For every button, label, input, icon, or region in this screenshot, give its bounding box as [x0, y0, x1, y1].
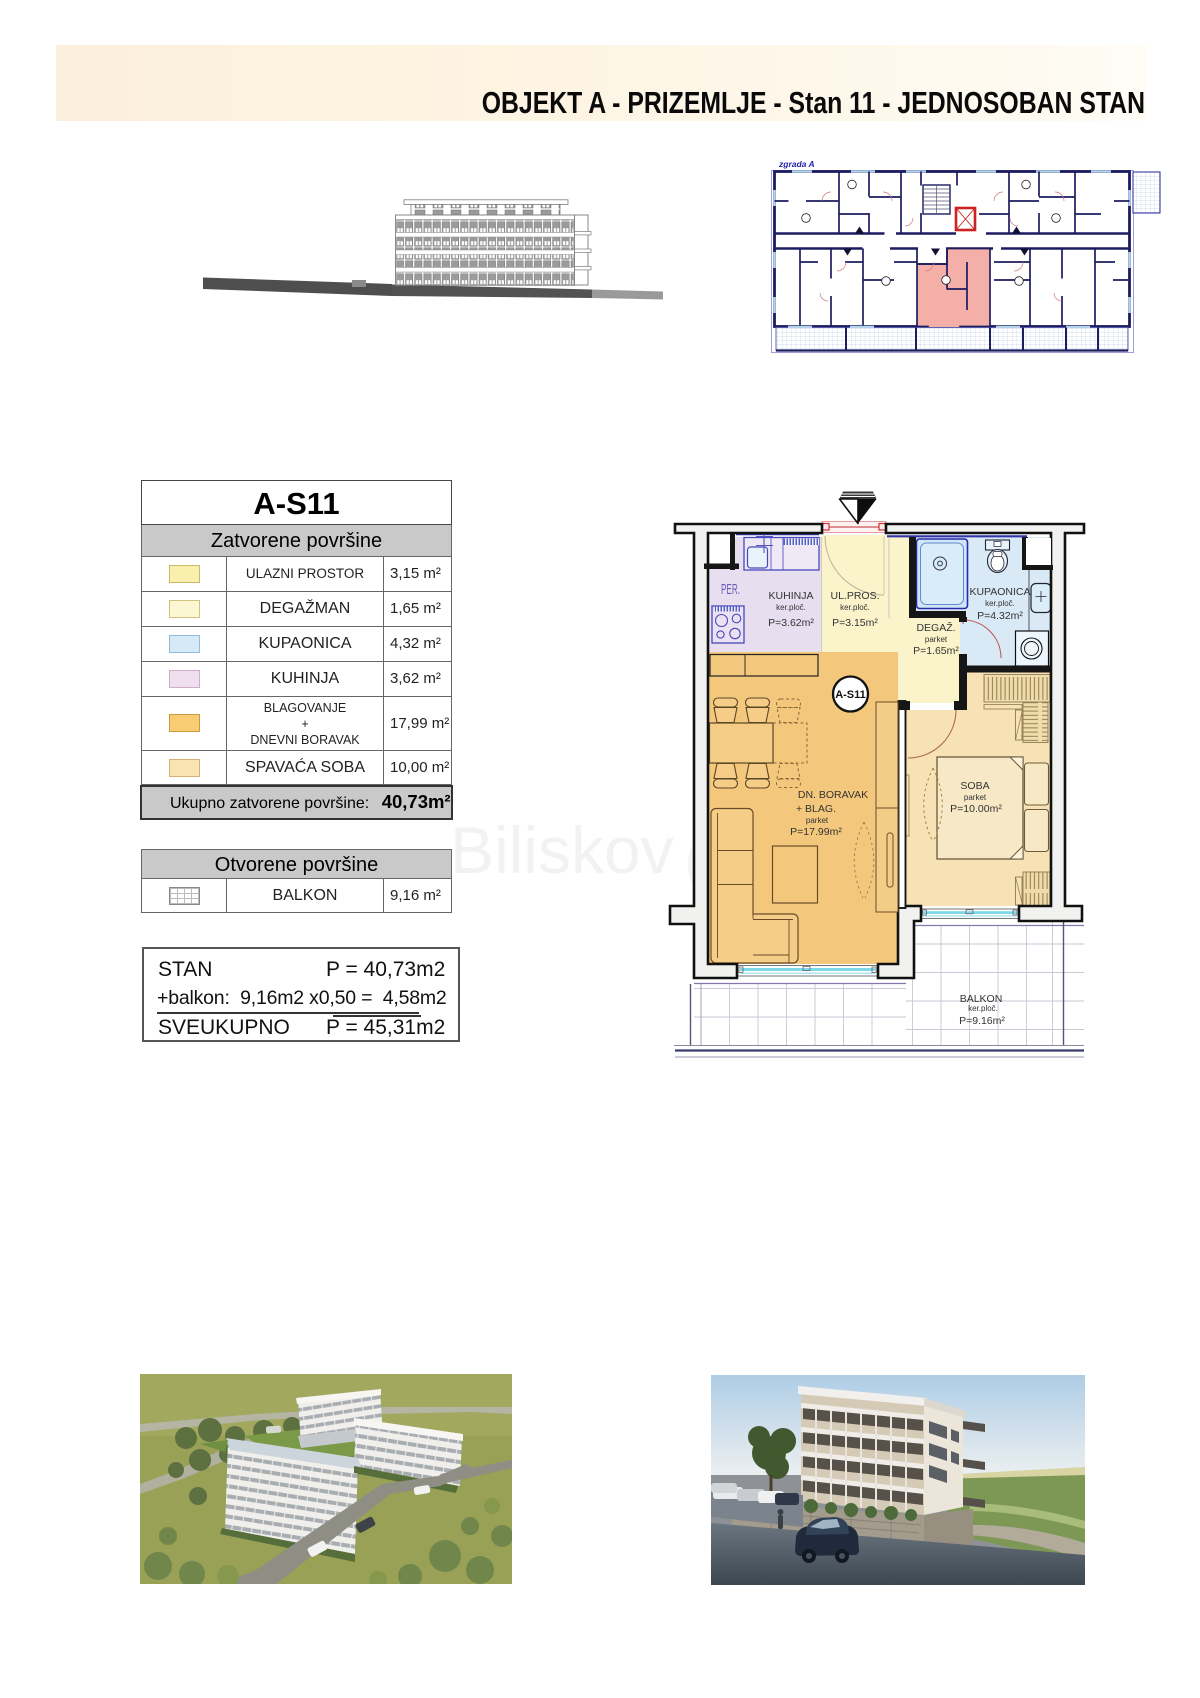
svg-text:SOBA: SOBA	[960, 780, 989, 792]
svg-text:KUPAONICA: KUPAONICA	[969, 586, 1030, 598]
svg-text:A-S11: A-S11	[835, 689, 866, 701]
svg-text:KUHINJA: KUHINJA	[769, 590, 814, 602]
svg-text:P=1.65m²: P=1.65m²	[913, 645, 959, 657]
svg-text:parket: parket	[964, 793, 987, 802]
svg-text:P=3.15m²: P=3.15m²	[832, 617, 878, 629]
svg-text:P=9.16m²: P=9.16m²	[959, 1015, 1005, 1027]
svg-text:ker.ploč.: ker.ploč.	[968, 1004, 998, 1013]
svg-text:P=4.32m²: P=4.32m²	[977, 610, 1023, 622]
svg-text:ker.ploč.: ker.ploč.	[985, 599, 1015, 608]
svg-text:P=10.00m²: P=10.00m²	[950, 803, 1002, 815]
svg-text:P=3.62m²: P=3.62m²	[768, 617, 814, 629]
svg-text:DEGAŽ.: DEGAŽ.	[916, 621, 955, 634]
svg-text:ker.ploč.: ker.ploč.	[776, 603, 806, 612]
svg-text:ker.ploč.: ker.ploč.	[840, 603, 870, 612]
svg-text:DN. BORAVAK: DN. BORAVAK	[798, 789, 868, 801]
svg-text:PER.: PER.	[721, 581, 740, 598]
svg-text:parket: parket	[925, 635, 948, 644]
svg-text:parket: parket	[806, 816, 829, 825]
svg-text:+ BLAG.: + BLAG.	[796, 803, 836, 815]
svg-text:UL.PROS.: UL.PROS.	[830, 590, 879, 602]
svg-text:zgrada A: zgrada A	[778, 159, 815, 169]
svg-text:P=17.99m²: P=17.99m²	[790, 826, 842, 838]
